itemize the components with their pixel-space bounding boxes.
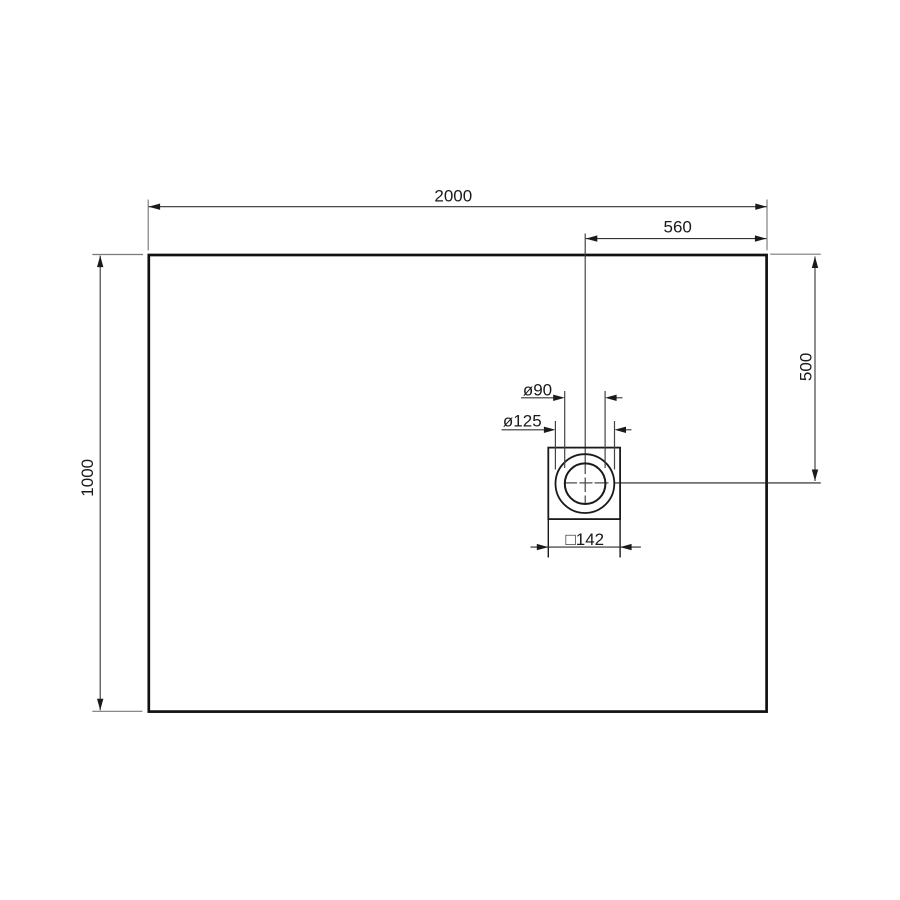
svg-text:ø125: ø125 bbox=[503, 412, 542, 431]
svg-text:500: 500 bbox=[796, 353, 815, 381]
svg-text:□142: □142 bbox=[565, 530, 604, 549]
svg-text:2000: 2000 bbox=[434, 186, 472, 205]
svg-text:560: 560 bbox=[664, 217, 692, 236]
svg-text:1000: 1000 bbox=[78, 459, 97, 497]
svg-text:ø90: ø90 bbox=[523, 380, 552, 399]
